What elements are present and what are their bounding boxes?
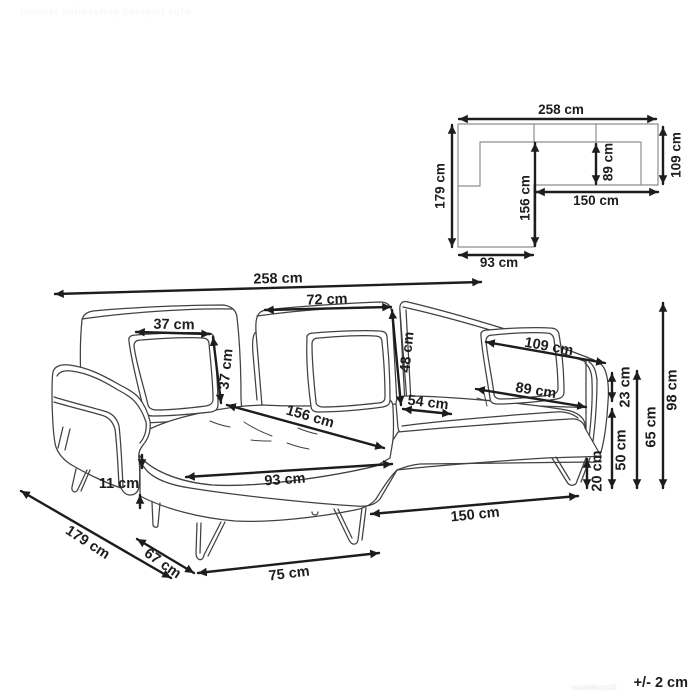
svg-text:11 cm: 11 cm [99,476,139,492]
svg-text:20 cm: 20 cm [590,450,606,491]
svg-text:93 cm: 93 cm [480,255,518,270]
svg-text:65 cm: 65 cm [644,406,660,447]
svg-text:+/- 2 cm: +/- 2 cm [634,675,688,691]
svg-text:109 cm: 109 cm [669,132,684,178]
svg-text:50 cm: 50 cm [614,429,630,470]
svg-text:moebelshop24: moebelshop24 [571,683,618,692]
svg-text:156 cm: 156 cm [518,175,533,221]
svg-text:150 cm: 150 cm [573,193,619,208]
svg-text:93 cm: 93 cm [264,471,306,490]
svg-text:37 cm: 37 cm [153,317,194,334]
svg-text:72 cm: 72 cm [306,291,348,308]
svg-text:98 cm: 98 cm [665,369,681,410]
svg-text:23 cm: 23 cm [618,366,634,407]
svg-text:89 cm: 89 cm [601,143,616,181]
svg-text:75 cm: 75 cm [268,564,311,585]
svg-text:179 cm: 179 cm [433,163,448,209]
svg-text:258 cm: 258 cm [538,102,584,117]
svg-text:moebel onlineshop beispiel sof: moebel onlineshop beispiel sofa [20,7,190,18]
svg-text:258 cm: 258 cm [253,270,303,287]
